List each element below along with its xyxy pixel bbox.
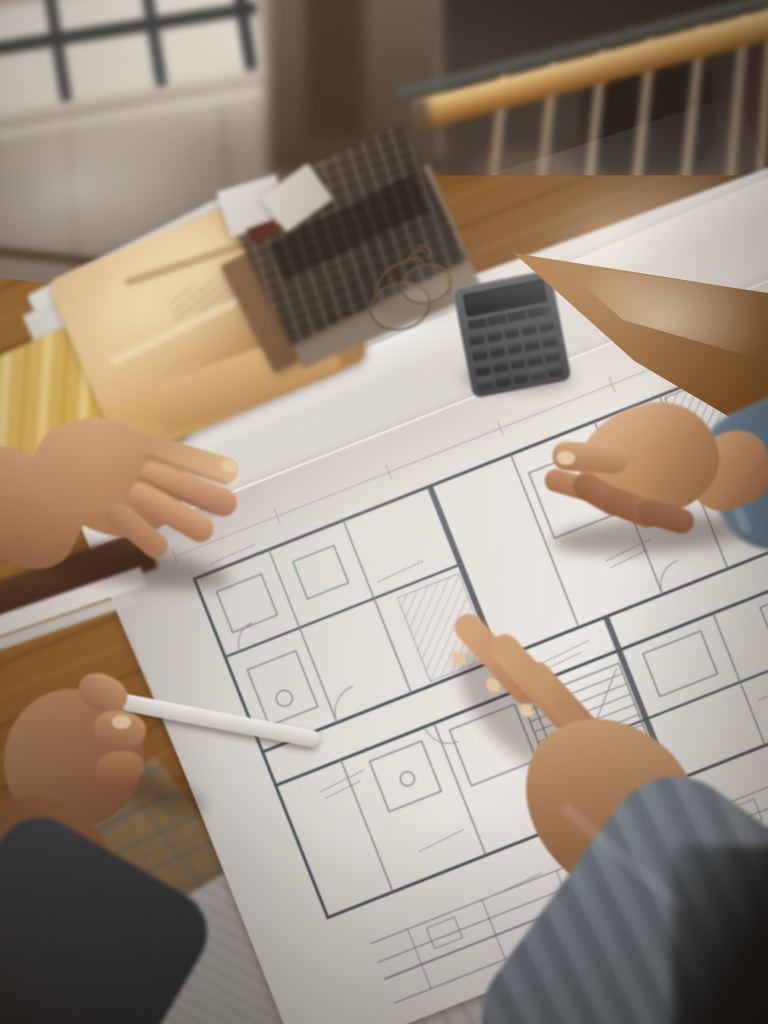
- bottom-right-corner-shadow: [672, 846, 768, 1024]
- fist-hand: [0, 655, 220, 1024]
- photograph: [0, 0, 768, 1024]
- door-dark-gap: [306, 0, 364, 140]
- calculator-keypad: [468, 318, 563, 391]
- fist-thumb-nail: [112, 715, 131, 729]
- right-hand: [533, 370, 768, 587]
- eyeglasses-shadow: [372, 300, 458, 318]
- dark-sleeve: [0, 802, 223, 1024]
- left-hand: [0, 380, 278, 627]
